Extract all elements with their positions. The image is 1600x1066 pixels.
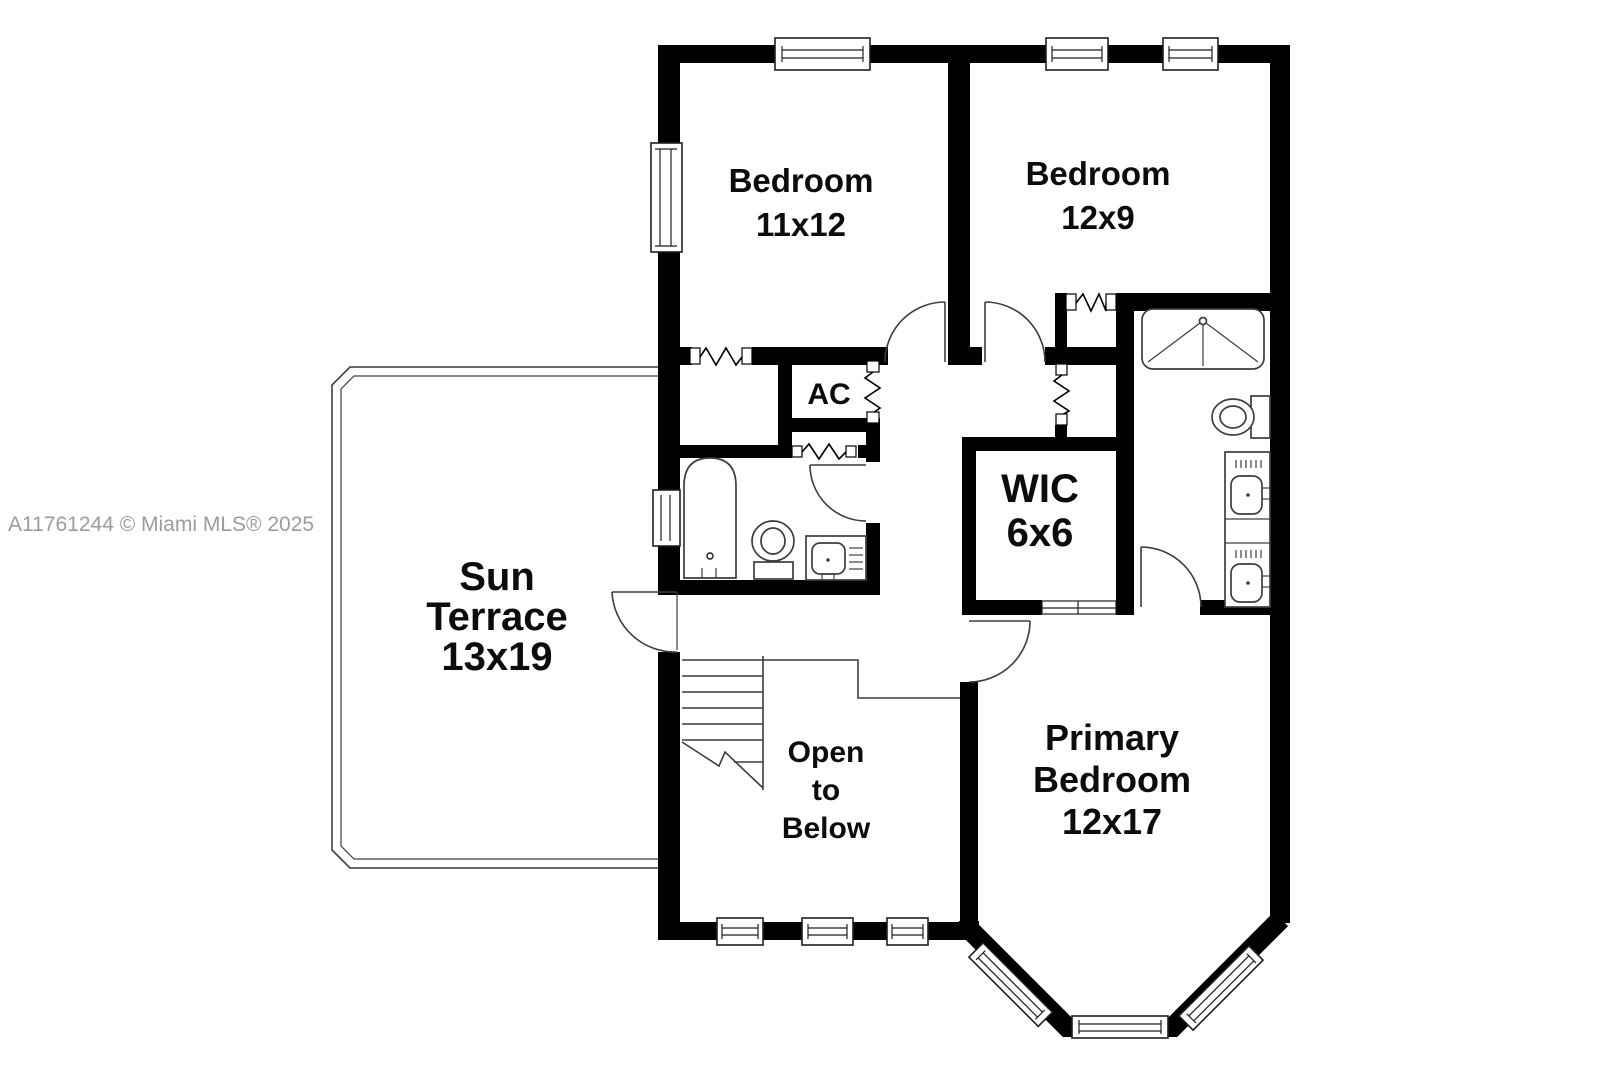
bedroom1-dim: 11x12 [756,206,846,243]
bifold-door-icon [802,444,846,459]
primary-bedroom-label-2: Bedroom [1033,759,1191,800]
bifold-door-icon [1054,375,1069,415]
open-to-below-label-2: to [812,774,840,807]
bifold-door-icon [865,372,880,413]
bedroom1-label: Bedroom [729,162,874,199]
window-icon [969,943,1052,1026]
door-swing-icon [885,302,945,362]
bifold-door-icon [700,348,742,365]
window-icon [1046,38,1108,70]
sun-terrace-label-2: Terrace [426,595,568,639]
primary-bedroom-label-1: Primary [1045,717,1179,758]
window-icon [802,918,853,945]
bedroom2-dim: 12x9 [1061,199,1134,236]
window-icon [1163,38,1218,70]
window-icon [775,38,870,70]
floor-plan-page: Bedroom 11x12 Bedroom 12x9 AC WIC 6x6 Su… [0,0,1600,1066]
ac-label: AC [807,378,850,411]
sun-terrace-label-1: Sun [459,555,535,599]
sun-terrace-dim: 13x19 [441,635,552,679]
window-icon [651,143,682,252]
toilet-icon [752,521,794,579]
door-swing-icon [810,465,866,521]
toilet-icon [1212,396,1270,438]
primary-bathroom [1142,309,1270,607]
vanity-icon [1225,452,1270,607]
shower-icon [1142,309,1264,369]
door-swing-icon [612,592,677,652]
wic-opening [1042,601,1116,614]
door-swing-icon [1141,547,1201,607]
bedroom2-label: Bedroom [1026,155,1171,192]
room-labels: Bedroom 11x12 Bedroom 12x9 AC WIC 6x6 Su… [426,155,1191,845]
window-icon [653,490,680,546]
stairs-icon [682,656,763,790]
door-swing-icon [985,302,1045,362]
open-to-below-label-1: Open [788,736,865,769]
mls-watermark: A11761244 © Miami MLS® 2025 [8,513,314,536]
hall-bathroom [684,458,866,581]
primary-bedroom-dim: 12x17 [1062,801,1162,842]
sink-icon [806,536,866,581]
window-icon [887,918,928,945]
bathtub-icon [684,458,736,578]
open-to-below-railing [763,660,960,698]
window-icon [1072,1016,1168,1038]
window-icon [717,918,763,945]
bifold-door-icon [1076,294,1106,311]
wic-label: WIC [1001,467,1079,511]
floor-plan: Bedroom 11x12 Bedroom 12x9 AC WIC 6x6 Su… [0,0,1600,1066]
door-swing-icon [969,621,1030,682]
window-icon [1179,946,1263,1030]
wic-dim: 6x6 [1007,511,1074,555]
open-to-below-label-3: Below [782,812,871,845]
